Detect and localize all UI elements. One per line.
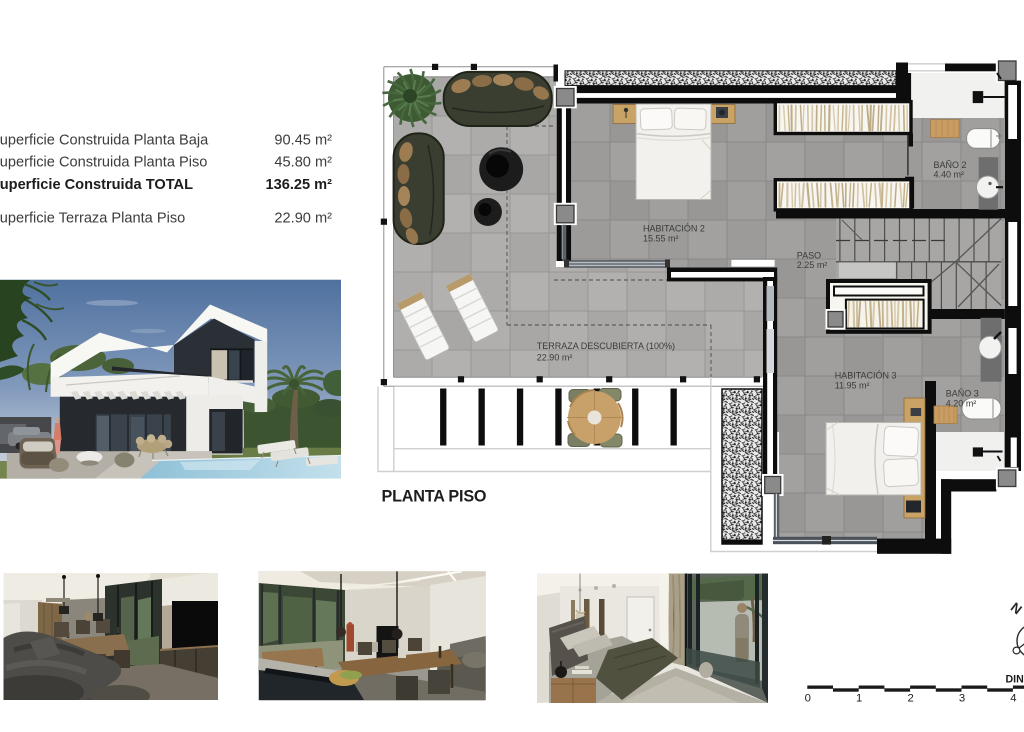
svg-text:22.90 m²: 22.90 m²	[537, 353, 573, 363]
svg-text:BAÑO 3: BAÑO 3	[946, 389, 979, 399]
svg-text:HABITACIÓN 3: HABITACIÓN 3	[835, 371, 897, 381]
svg-text:Superficie Construida Planta P: Superficie Construida Planta Piso	[0, 155, 207, 171]
svg-text:DIN: DIN	[1006, 674, 1024, 686]
svg-text:Superficie Terraza Planta Piso: Superficie Terraza Planta Piso	[0, 211, 185, 227]
svg-text:Superficie Construida Planta B: Superficie Construida Planta Baja	[0, 132, 209, 148]
svg-text:22.90 m²: 22.90 m²	[274, 211, 332, 227]
svg-text:4: 4	[1010, 693, 1016, 705]
svg-text:90.45 m²: 90.45 m²	[274, 132, 332, 148]
svg-text:TERRAZA DESCUBIERTA (100%): TERRAZA DESCUBIERTA (100%)	[537, 341, 675, 351]
svg-text:1: 1	[856, 693, 862, 705]
svg-text:3: 3	[959, 693, 965, 705]
svg-text:0: 0	[805, 693, 811, 705]
svg-text:45.80 m²: 45.80 m²	[274, 155, 332, 171]
svg-text:PLANTA PISO: PLANTA PISO	[382, 488, 487, 506]
svg-text:136.25 m²: 136.25 m²	[265, 177, 332, 193]
svg-text:HABITACIÓN 2: HABITACIÓN 2	[643, 224, 705, 234]
svg-text:2: 2	[907, 693, 913, 705]
svg-text:15.55 m²: 15.55 m²	[643, 234, 679, 244]
svg-text:2.25 m²: 2.25 m²	[797, 260, 828, 270]
svg-text:4.40 m²: 4.40 m²	[934, 169, 965, 179]
svg-text:BAÑO 2: BAÑO 2	[934, 160, 967, 170]
svg-text:11.95 m²: 11.95 m²	[835, 381, 870, 391]
svg-text:N: N	[1008, 600, 1024, 618]
svg-text:Superficie Construida TOTAL: Superficie Construida TOTAL	[0, 177, 193, 193]
svg-text:PASO: PASO	[797, 251, 821, 261]
svg-text:4.20 m²: 4.20 m²	[946, 399, 977, 409]
